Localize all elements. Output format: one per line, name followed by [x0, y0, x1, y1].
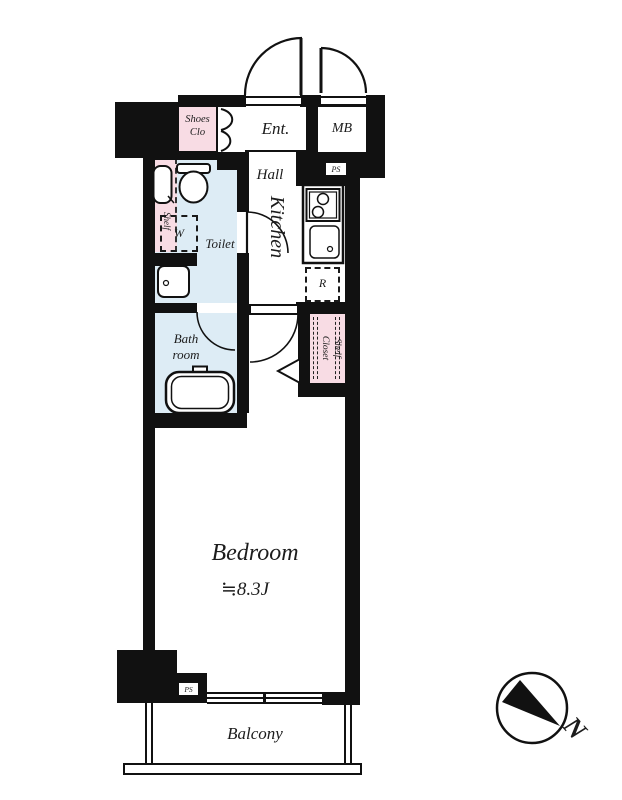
wall: [237, 313, 249, 413]
wall: [143, 253, 197, 266]
room-meter-box: [316, 105, 368, 154]
kitchen-counter-icon: [303, 185, 343, 263]
wall: [318, 152, 368, 162]
bifold-door-icon: [221, 109, 232, 151]
room-entrance: [245, 107, 306, 152]
entrance-door-icon: [245, 38, 302, 95]
room-bathroom: [155, 313, 237, 413]
wall: [117, 650, 177, 703]
wall: [368, 95, 385, 165]
wall: [143, 413, 247, 428]
refrigerator-box: [305, 267, 340, 302]
wall: [143, 303, 197, 313]
wall: [237, 253, 249, 313]
label-bedroom-size: ≒8.3J: [170, 578, 320, 602]
wall: [237, 158, 249, 212]
shelf-closet-dashes-right: [335, 317, 340, 379]
wall: [345, 160, 385, 178]
label-hall: Hall: [245, 166, 295, 185]
label-kitchen: Kitchen: [269, 167, 289, 287]
wall: [178, 95, 246, 107]
entrance-door-sill: [246, 96, 301, 106]
floor-plan: PS PS: [0, 0, 622, 800]
label-balcony: Balcony: [180, 723, 330, 744]
balcony-rail-right: [344, 705, 352, 763]
wall: [143, 158, 155, 652]
closet-door-icon: [278, 359, 300, 383]
washer-box: [160, 215, 198, 252]
wall: [115, 102, 178, 158]
label-compass-north: N: [550, 703, 599, 753]
room-shoes-closet: [177, 105, 218, 153]
toilet-door-icon: [247, 212, 288, 253]
wall: [298, 383, 345, 397]
pipe-space-bottom: PS: [178, 682, 199, 696]
wall: [300, 95, 321, 107]
wall: [143, 152, 249, 160]
label-bedroom: Bedroom: [170, 538, 340, 568]
entrance-step-line: [245, 150, 306, 152]
corridor-door-icon: [250, 305, 298, 362]
wall: [322, 692, 360, 705]
meter-box-door-icon: [321, 48, 366, 93]
balcony-window-mullion: [263, 692, 266, 704]
shelf-closet-dashes-left: [313, 317, 318, 379]
compass-icon: [497, 673, 567, 743]
wall: [345, 178, 360, 705]
balcony-rail-left: [145, 703, 153, 763]
meter-box-door-sill: [321, 96, 366, 106]
pipe-space-bottom-label: PS: [184, 685, 192, 694]
pipe-space-top-label: PS: [332, 165, 341, 174]
pipe-space-top: PS: [325, 162, 347, 176]
balcony-rail-bottom: [123, 763, 362, 775]
